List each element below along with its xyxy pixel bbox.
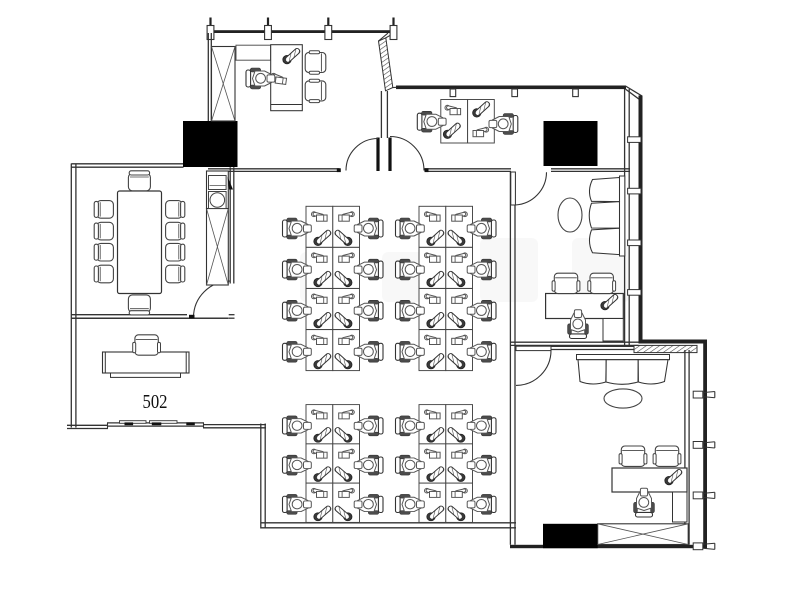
svg-text:502: 502 [143,391,168,413]
